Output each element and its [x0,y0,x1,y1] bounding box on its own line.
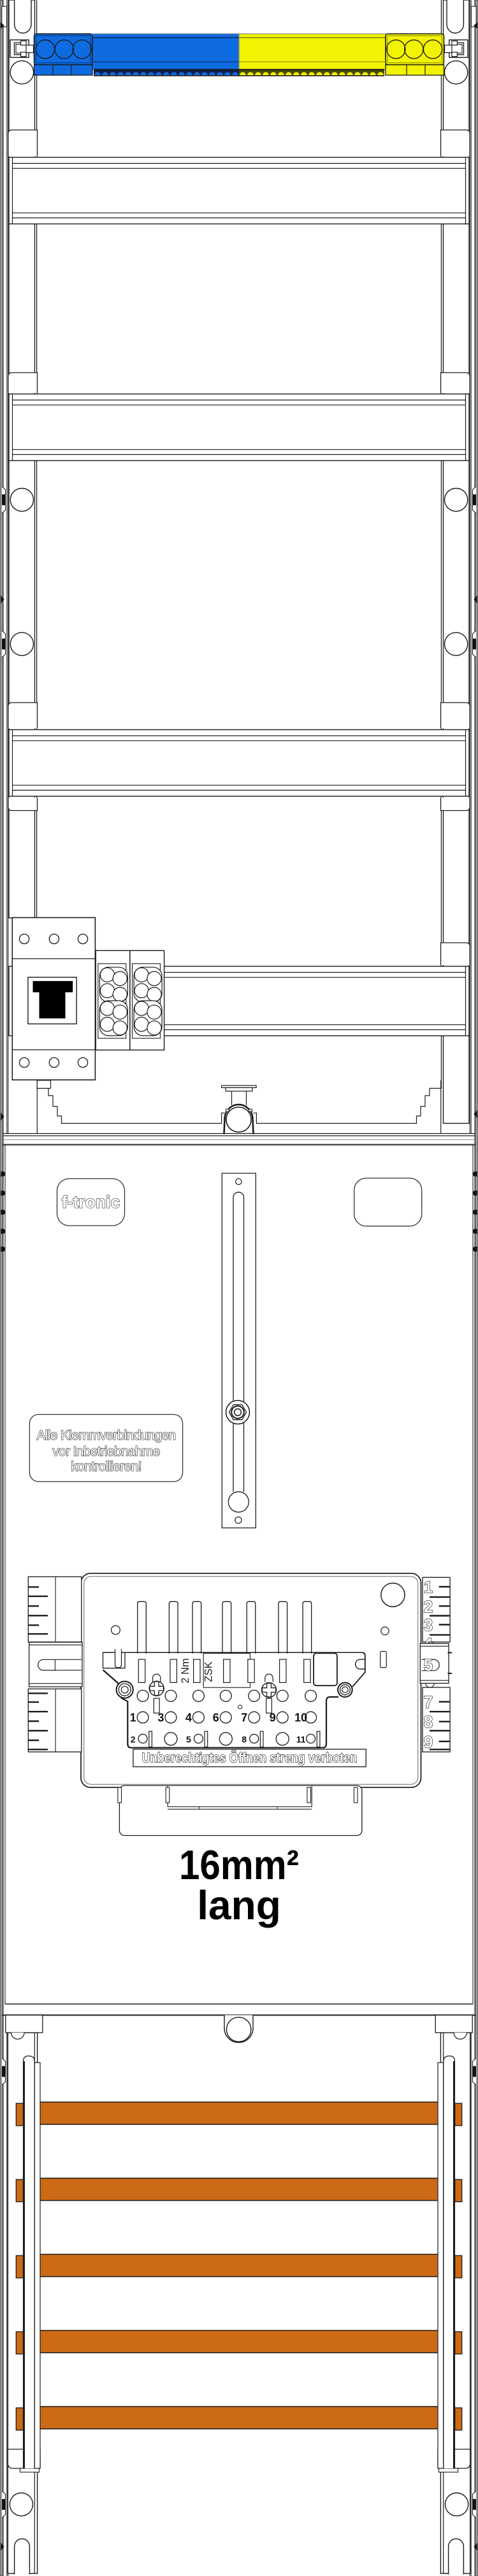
svg-text:3: 3 [157,1712,164,1724]
svg-text:1: 1 [424,1578,433,1597]
svg-text:5: 5 [424,1656,433,1675]
svg-text:11: 11 [296,1735,306,1745]
svg-text:6: 6 [213,1712,219,1724]
svg-text:10: 10 [294,1712,307,1724]
svg-text:7: 7 [241,1712,247,1724]
svg-text:9: 9 [270,1712,276,1724]
svg-text:Alle Klemmverbindungen: Alle Klemmverbindungen [36,1428,175,1443]
svg-text:2 Nm: 2 Nm [180,1658,191,1683]
svg-text:lang: lang [197,1882,281,1928]
svg-text:5: 5 [186,1735,191,1745]
svg-text:16mm²: 16mm² [179,1842,299,1888]
svg-text:4: 4 [185,1712,192,1724]
svg-text:3: 3 [424,1615,433,1635]
svg-text:2: 2 [424,1597,433,1616]
svg-text:9: 9 [424,1732,433,1751]
svg-text:2: 2 [131,1735,136,1745]
svg-text:8: 8 [242,1735,247,1745]
svg-text:7: 7 [424,1692,433,1712]
svg-text:f-tronic: f-tronic [62,1192,120,1212]
svg-text:kontrollieren!: kontrollieren! [71,1459,141,1474]
svg-text:vor Inbetriebnahme: vor Inbetriebnahme [52,1445,159,1459]
svg-text:Unberechtigtes Öffnen streng v: Unberechtigtes Öffnen streng verboten [142,1750,358,1766]
svg-text:1: 1 [130,1712,136,1724]
svg-text:ZSK: ZSK [203,1661,215,1682]
svg-text:8: 8 [424,1712,433,1731]
